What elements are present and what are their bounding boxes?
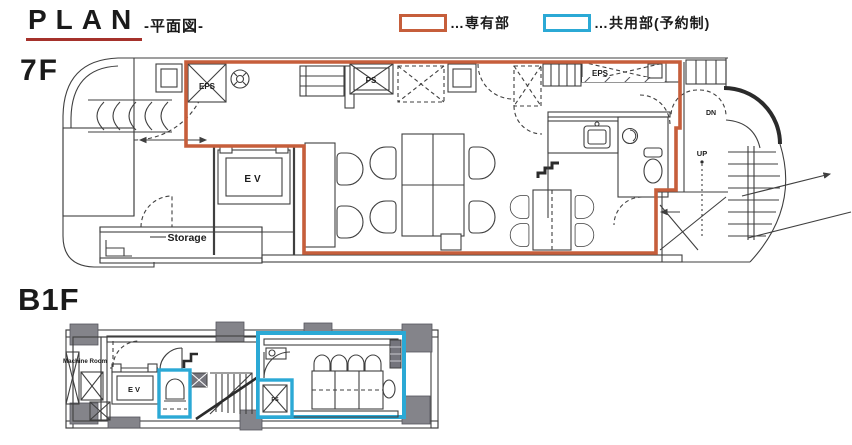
elevator-7f: EV [214,146,294,255]
top-service-band: EPS PS [156,60,726,134]
ev-7f-label: EV [244,174,263,185]
storage-label: Storage [167,232,206,244]
eps-shaft-left: EPS [188,64,226,102]
floor-b1f-plan: Machine Room EV [63,322,438,430]
plan-drawing: Storage EPS [0,0,852,445]
floor-7f-plan: Storage EPS [63,58,851,267]
dn-label: DN [706,110,716,117]
south-wall-7f [262,255,682,262]
ps-b1f-label: PS [271,397,279,403]
meeting-table-small [533,190,571,250]
meeting-table-large [402,134,464,236]
machine-room-label: Machine Room [63,358,108,365]
step-symbol-b1f [184,354,198,368]
eps-left-label: EPS [199,82,216,91]
shared-ps-b1f: PS [258,380,292,417]
eps-right-label: EPS [592,69,609,78]
flexible-duct [88,100,172,132]
ps-shaft-7f: PS [350,64,393,94]
stairwell-7f: UP DN [656,58,851,262]
up-label: UP [697,149,707,158]
floor-plan-page: PLAN -平面図- …専有部 …共用部(予約制) 7F B1F [0,0,852,445]
ev-b1f-label: EV [128,385,142,394]
toilet-icon [644,148,662,183]
fan-symbol-icon [231,70,249,88]
eps-shaft-right: EPS [582,62,668,82]
shared-toilet-b1f [159,370,190,417]
side-desk [305,143,335,247]
ps-7f-label: PS [366,76,377,85]
storage-room: Storage [100,196,262,263]
meeting-table-b1f [312,371,383,409]
